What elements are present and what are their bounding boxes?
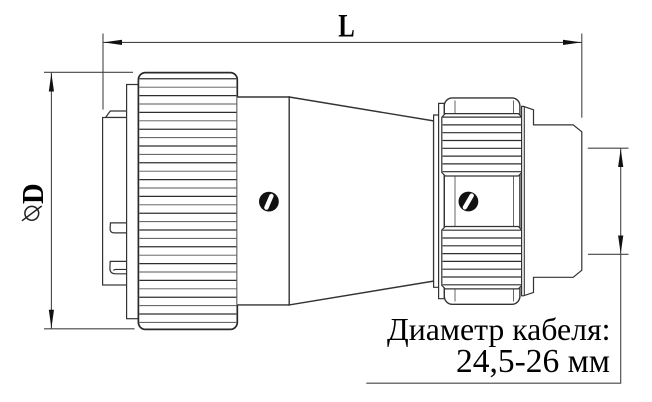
svg-text:Диаметр кабеля:: Диаметр кабеля: <box>387 312 610 347</box>
svg-text:24,5-26 мм: 24,5-26 мм <box>456 343 610 380</box>
svg-text:L: L <box>338 8 355 44</box>
svg-text:D: D <box>16 183 50 204</box>
